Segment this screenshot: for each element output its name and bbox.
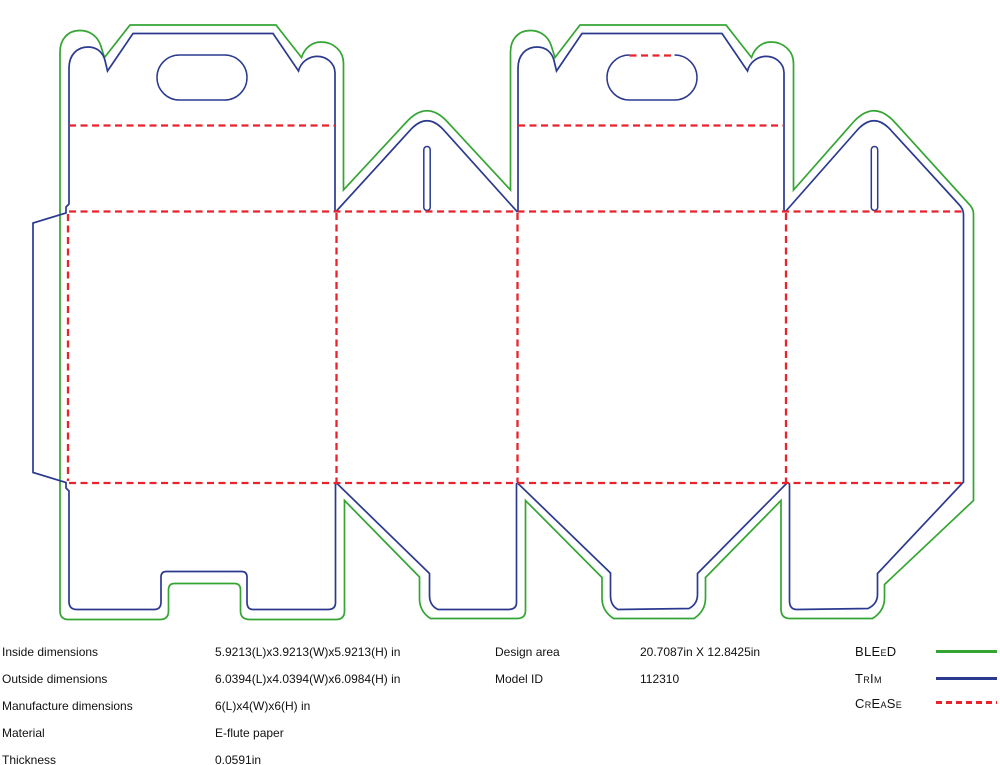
outside-dimensions-label: Outside dimensions: [2, 672, 107, 687]
thickness-value: 0.0591in: [215, 753, 261, 765]
gable-slot-left: [424, 147, 430, 211]
thickness-label: Thickness: [2, 753, 56, 765]
dieline-drawing: [0, 0, 1000, 632]
legend-crease-label: CrEaSe: [855, 696, 902, 711]
inside-dimensions-label: Inside dimensions: [2, 645, 98, 660]
legend-bleed-label: BLEeD: [855, 644, 896, 659]
legend-trim-label: TrIm: [855, 671, 882, 686]
inside-dimensions-value: 5.9213(L)x3.9213(W)x5.9213(H) in: [215, 645, 400, 660]
legend-trim-line: [936, 677, 997, 680]
design-area-label: Design area: [495, 645, 560, 660]
outside-dimensions-value: 6.0394(L)x4.0394(W)x6.0984(H) in: [215, 672, 400, 687]
handle-hole-right: [607, 55, 697, 100]
legend-crease-line: [936, 701, 997, 704]
handle-hole-left: [157, 55, 247, 100]
design-area-value: 20.7087in X 12.8425in: [640, 645, 760, 660]
trim-outline: [33, 34, 964, 610]
manufacture-dimensions-label: Manufacture dimensions: [2, 699, 133, 714]
material-value: E-flute paper: [215, 726, 284, 741]
legend-bleed-line: [936, 650, 997, 653]
model-id-value: 112310: [640, 672, 679, 687]
manufacture-dimensions-value: 6(L)x4(W)x6(H) in: [215, 699, 310, 714]
gable-slot-right: [871, 147, 877, 211]
material-label: Material: [2, 726, 45, 741]
dieline-page: Inside dimensions 5.9213(L)x3.9213(W)x5.…: [0, 0, 1000, 765]
model-id-label: Model ID: [495, 672, 543, 687]
